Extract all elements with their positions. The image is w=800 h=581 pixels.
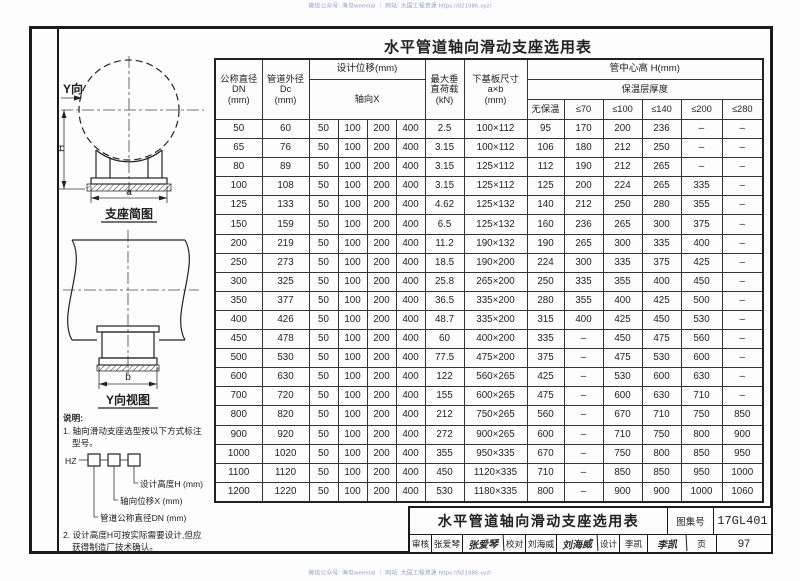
table-cell: 710 (603, 425, 642, 444)
table-cell: 50 (309, 482, 338, 502)
table-cell: 236 (642, 120, 681, 139)
table-cell: – (681, 158, 722, 177)
table-cell: 375 (527, 349, 564, 368)
table-cell: 400 (215, 310, 262, 329)
table-cell: 300 (603, 234, 642, 253)
table-cell: 670 (527, 444, 564, 463)
table-cell: 100 (338, 196, 367, 215)
title-block: 水平管道轴向滑动支座选用表 图集号 17GL401 审核 张爱琴 张爱琴 校对 … (408, 506, 773, 554)
table-cell: 475 (527, 387, 564, 406)
note-1-line-1: 1. 轴向滑动支座选型按以下方式标注 (63, 425, 202, 436)
table-cell: 400 (396, 425, 425, 444)
table-cell: 475 (642, 330, 681, 349)
table-cell: 355 (681, 196, 722, 215)
table-cell: 100 (338, 368, 367, 387)
table-cell: 150 (215, 215, 262, 234)
sketch1-caption: 支座简图 (104, 206, 153, 221)
table-cell: 950×335 (464, 444, 527, 463)
table-cell: – (564, 482, 603, 502)
table-cell: 106 (527, 139, 564, 158)
table-row: 100108501002004003.15125×112125200224265… (215, 177, 763, 196)
table-cell: 560 (681, 330, 722, 349)
table-cell: 900 (642, 482, 681, 502)
table-cell: 425 (642, 291, 681, 310)
table-cell: 280 (527, 291, 564, 310)
table-cell: 850 (681, 444, 722, 463)
table-cell: 400 (396, 158, 425, 177)
table-cell: 1060 (722, 482, 763, 502)
table-cell: 155 (425, 387, 464, 406)
y-direction-label: Y向 (63, 81, 83, 96)
table-row: 2002195010020040011.2190×132190265300335… (215, 234, 763, 253)
table-cell: 212 (603, 139, 642, 158)
table-cell: 50 (309, 291, 338, 310)
table-cell: 800 (215, 406, 262, 425)
table-row: 11001120501002004004501120×335710–850850… (215, 463, 763, 482)
table-cell: 100 (338, 291, 367, 310)
table-cell: 180 (564, 139, 603, 158)
table-cell: 560×265 (464, 368, 527, 387)
table-cell: 450 (642, 310, 681, 329)
table-cell: 125×112 (464, 177, 527, 196)
table-cell: 50 (309, 177, 338, 196)
table-cell: 125×132 (464, 215, 527, 234)
table-cell: 400 (396, 215, 425, 234)
table-cell: 200 (367, 291, 396, 310)
table-cell: 190×132 (464, 234, 527, 253)
table-cell: 1100 (215, 463, 262, 482)
table-cell: 3.15 (425, 139, 464, 158)
reviewer-label: 审核 (410, 535, 432, 552)
table-cell: 355 (564, 291, 603, 310)
table-cell: 190 (527, 234, 564, 253)
table-cell: 920 (262, 425, 309, 444)
table-cell: 200 (367, 196, 396, 215)
table-cell: 530 (425, 482, 464, 502)
table-cell: 400 (396, 387, 425, 406)
table-cell: – (722, 234, 763, 253)
table-cell: 400 (396, 349, 425, 368)
table-cell: 265 (564, 234, 603, 253)
table-row: 1000102050100200400355950×335670–7508008… (215, 444, 763, 463)
table-cell: 125 (527, 177, 564, 196)
atlas-number-label: 图集号 (668, 508, 714, 534)
table-cell: 710 (642, 406, 681, 425)
table-cell: – (722, 177, 763, 196)
table-cell: 160 (527, 215, 564, 234)
table-cell: 950 (722, 444, 763, 463)
table-cell: 400 (396, 291, 425, 310)
table-cell: 250 (603, 196, 642, 215)
table-cell: 200 (367, 425, 396, 444)
table-cell: 50 (309, 463, 338, 482)
page-number: 97 (717, 535, 771, 552)
table-cell: – (564, 330, 603, 349)
table-cell: 250 (642, 139, 681, 158)
table-cell: 1120 (262, 463, 309, 482)
page-label: 页 (687, 535, 717, 552)
table-cell: 100 (215, 177, 262, 196)
table-cell: 400 (564, 310, 603, 329)
table-cell: 1000 (722, 463, 763, 482)
table-cell: – (722, 253, 763, 272)
table-cell: 200 (367, 368, 396, 387)
table-cell: 400 (396, 139, 425, 158)
table-row: 80082050100200400212750×265560–670710750… (215, 406, 763, 425)
table-cell: 400 (603, 291, 642, 310)
table-cell: 212 (603, 158, 642, 177)
table-area: 水平管道轴向滑动支座选用表 公称直径 DN (mm) 管道外径 Dc (214, 39, 762, 503)
table-cell: 400 (396, 234, 425, 253)
table-row: 125133501002004004.62125×132140212250280… (215, 196, 763, 215)
header-center-height-group: 管中心高 H(mm) (527, 59, 763, 80)
table-cell: 272 (425, 425, 464, 444)
table-cell: 200 (367, 463, 396, 482)
table-cell: 200 (367, 253, 396, 272)
table-cell: 400 (396, 330, 425, 349)
table-cell: 200 (367, 120, 396, 139)
table-cell: 200 (367, 349, 396, 368)
table-cell: 335 (564, 272, 603, 291)
table-cell: 720 (262, 387, 309, 406)
table-cell: 850 (603, 463, 642, 482)
table-cell: 95 (527, 120, 564, 139)
table-cell: 100 (338, 406, 367, 425)
table-cell: 200 (367, 406, 396, 425)
table-row: 70072050100200400155600×265475–600630710… (215, 387, 763, 406)
table-cell: 50 (309, 310, 338, 329)
notes-section: 说明: 1. 轴向滑动支座选型按以下方式标注 型号。 HZ 设计高度H (mm)… (58, 404, 212, 552)
selection-table: 公称直径 DN (mm) 管道外径 Dc (mm) 设计位移(mm) 最大垂 直… (214, 58, 764, 503)
table-cell: 315 (527, 310, 564, 329)
table-cell: 50 (309, 139, 338, 158)
table-row: 3003255010020040025.8265×200250335355400… (215, 272, 763, 291)
table-cell: 100 (338, 253, 367, 272)
table-cell: – (722, 368, 763, 387)
table-cell: 400 (642, 272, 681, 291)
table-cell: 400 (396, 444, 425, 463)
table-cell: 820 (262, 406, 309, 425)
watermark-bottom: 微信公众号: 海见weental ｜ 网站: 大国工程资源 https://52… (72, 569, 728, 577)
table-cell: 425 (527, 368, 564, 387)
table-cell: 950 (681, 463, 722, 482)
header-insulation-thickness: 保温层厚度 (527, 80, 763, 100)
table-cell: 212 (425, 406, 464, 425)
table-cell: – (722, 310, 763, 329)
table-cell: 450 (681, 272, 722, 291)
table-cell: 170 (564, 120, 603, 139)
table-cell: 200 (367, 158, 396, 177)
table-row: 3503775010020040036.5335×200280355400425… (215, 291, 763, 310)
note-1-line-2: 型号。 (72, 438, 98, 448)
table-cell: 335 (603, 253, 642, 272)
table-cell: 65 (215, 139, 262, 158)
table-cell: 2.5 (425, 120, 464, 139)
table-cell: 300 (564, 253, 603, 272)
table-cell: 50 (309, 349, 338, 368)
table-cell: 1000 (681, 482, 722, 502)
table-cell: 200 (367, 330, 396, 349)
table-cell: 1020 (262, 444, 309, 463)
table-cell: 112 (527, 158, 564, 177)
table-cell: – (722, 330, 763, 349)
table-cell: 335×200 (464, 291, 527, 310)
table-cell: 25.8 (425, 272, 464, 291)
table-cell: 280 (642, 196, 681, 215)
header-le200: ≤200 (681, 100, 722, 120)
table-cell: 630 (262, 368, 309, 387)
table-cell: 400 (396, 310, 425, 329)
table-cell: 200 (367, 139, 396, 158)
table-cell: 50 (309, 368, 338, 387)
table-cell: 1120×335 (464, 463, 527, 482)
table-cell: 100 (338, 272, 367, 291)
table-cell: – (722, 120, 763, 139)
table-cell: 335×200 (464, 310, 527, 329)
table-cell: 140 (527, 196, 564, 215)
table-cell: 200 (367, 234, 396, 253)
table-cell: 50 (215, 120, 262, 139)
table-cell: 100 (338, 444, 367, 463)
table-cell: 710 (527, 463, 564, 482)
table-cell: 77.5 (425, 349, 464, 368)
header-le70: ≤70 (564, 100, 603, 120)
table-cell: 3.15 (425, 177, 464, 196)
table-cell: 265 (642, 158, 681, 177)
table-cell: – (722, 387, 763, 406)
table-cell: 300 (215, 272, 262, 291)
table-cell: 355 (603, 272, 642, 291)
table-cell: 50 (309, 196, 338, 215)
table-cell: 50 (309, 253, 338, 272)
table-cell: 224 (603, 177, 642, 196)
table-cell: 200 (367, 444, 396, 463)
table-cell: 76 (262, 139, 309, 158)
table-row: 90092050100200400272900×265600–710750800… (215, 425, 763, 444)
reviewer-signature: 张爱琴 (463, 534, 505, 553)
table-cell: 50 (309, 234, 338, 253)
note-2-line-2: 获得制造厂技术确认。 (72, 541, 158, 552)
watermark-top: 微信公众号: 海见weental ｜ 网站: 大国工程资源 https://52… (72, 2, 728, 10)
table-cell: 18.5 (425, 253, 464, 272)
header-dn: 公称直径 DN (mm) (215, 59, 262, 120)
document-page: 微信公众号: 海见weental ｜ 网站: 大国工程资源 https://52… (0, 0, 800, 581)
table-cell: 50 (309, 330, 338, 349)
table-cell: – (722, 349, 763, 368)
designer-label: 设计 (598, 535, 620, 552)
table-cell: 50 (309, 406, 338, 425)
table-cell: 400 (681, 234, 722, 253)
table-cell: 425 (603, 310, 642, 329)
table-cell: 273 (262, 253, 309, 272)
table-cell: – (681, 139, 722, 158)
proofreader-label: 校对 (504, 535, 526, 552)
table-title: 水平管道轴向滑动支座选用表 (214, 39, 762, 57)
header-axial-x: 轴向X (309, 80, 425, 120)
table-cell: 50 (309, 272, 338, 291)
table-cell: 100 (338, 177, 367, 196)
table-cell: 400 (396, 120, 425, 139)
dim-a-label: a (126, 187, 132, 198)
table-cell: – (564, 463, 603, 482)
table-cell: 200 (367, 482, 396, 502)
table-cell: 6.5 (425, 215, 464, 234)
table-cell: 250 (215, 253, 262, 272)
y-view-diagram: b Y向视图 (57, 226, 213, 410)
table-cell: 335 (681, 177, 722, 196)
table-cell: 700 (215, 387, 262, 406)
table-row: 150159501002004006.5125×1321602362653003… (215, 215, 763, 234)
table-cell: 236 (564, 215, 603, 234)
table-cell: 1220 (262, 482, 309, 502)
table-cell: 800 (642, 444, 681, 463)
dim-h-label: H (56, 145, 67, 152)
table-cell: 265×200 (464, 272, 527, 291)
notes-heading: 说明: (63, 412, 83, 423)
table-row: 60063050100200400122560×265425–530600630… (215, 368, 763, 387)
leader-nominal-diameter: 管道公称直径DN (mm) (100, 512, 187, 523)
table-cell: 190 (564, 158, 603, 177)
table-cell: 600 (681, 349, 722, 368)
table-cell: 265 (642, 177, 681, 196)
header-le280: ≤280 (722, 100, 763, 120)
title-block-title: 水平管道轴向滑动支座选用表 (410, 508, 668, 534)
header-le140: ≤140 (642, 100, 681, 120)
designer-name: 李凯 (620, 535, 648, 552)
table-cell: – (722, 291, 763, 310)
table-cell: 3.15 (425, 158, 464, 177)
reviewer-name: 张爱琴 (432, 535, 463, 552)
table-cell: 50 (309, 215, 338, 234)
table-cell: 377 (262, 291, 309, 310)
table-cell: – (722, 272, 763, 291)
table-cell: 1180×335 (464, 482, 527, 502)
table-cell: 475 (603, 349, 642, 368)
model-prefix: HZ (65, 456, 76, 466)
table-cell: 200 (603, 120, 642, 139)
table-cell: 750 (603, 444, 642, 463)
table-cell: 425 (681, 253, 722, 272)
table-cell: 108 (262, 177, 309, 196)
table-row: 8089501002004003.15125×112112190212265–– (215, 158, 763, 177)
table-cell: 530 (681, 310, 722, 329)
table-cell: 375 (681, 215, 722, 234)
designer-signature: 李凯 (648, 534, 688, 553)
proofreader-name: 刘海威 (526, 535, 557, 552)
table-cell: 4.62 (425, 196, 464, 215)
table-cell: 60 (262, 120, 309, 139)
leader-axial-displacement: 轴向位移X (mm) (120, 495, 183, 506)
table-cell: 850 (642, 463, 681, 482)
table-cell: 60 (425, 330, 464, 349)
table-row: 12001220501002004005301180×335800–900900… (215, 482, 763, 502)
table-cell: 325 (262, 272, 309, 291)
table-row: 4004265010020040048.7335×200315400425450… (215, 310, 763, 329)
table-header: 公称直径 DN (mm) 管道外径 Dc (mm) 设计位移(mm) 最大垂 直… (215, 59, 763, 120)
table-cell: 219 (262, 234, 309, 253)
table-cell: – (681, 120, 722, 139)
table-cell: 48.7 (425, 310, 464, 329)
table-cell: 450 (215, 330, 262, 349)
table-cell: 50 (309, 444, 338, 463)
table-cell: – (722, 215, 763, 234)
table-cell: – (722, 158, 763, 177)
table-cell: 600×265 (464, 387, 527, 406)
header-displacement-group: 设计位移(mm) (309, 59, 425, 80)
table-cell: 125×132 (464, 196, 527, 215)
table-cell: 200 (367, 310, 396, 329)
table-cell: 200 (564, 177, 603, 196)
table-cell: 530 (262, 349, 309, 368)
table-cell: 850 (722, 406, 763, 425)
table-cell: 400 (396, 482, 425, 502)
table-cell: 600 (215, 368, 262, 387)
table-cell: 750×265 (464, 406, 527, 425)
table-cell: 100 (338, 139, 367, 158)
table-cell: 100 (338, 234, 367, 253)
support-table-body: 5060501002004002.5100×11295170200236––65… (215, 120, 763, 502)
table-cell: 375 (642, 253, 681, 272)
table-cell: 400 (396, 253, 425, 272)
table-cell: 100 (338, 310, 367, 329)
header-load: 最大垂 直荷载 (kN) (425, 59, 464, 120)
table-cell: 400×200 (464, 330, 527, 349)
table-row: 4504785010020040060400×200335–450475560– (215, 330, 763, 349)
table-cell: 1000 (215, 444, 262, 463)
table-cell: 335 (527, 330, 564, 349)
table-cell: 530 (642, 349, 681, 368)
table-cell: 400 (396, 463, 425, 482)
table-cell: 530 (603, 368, 642, 387)
table-cell: 670 (603, 406, 642, 425)
table-cell: 200 (367, 272, 396, 291)
table-cell: 900 (603, 482, 642, 502)
table-cell: 500 (681, 291, 722, 310)
dim-b-label: b (125, 372, 131, 383)
table-cell: 100×112 (464, 139, 527, 158)
atlas-number-value: 17GL401 (714, 508, 771, 534)
table-cell: 710 (681, 387, 722, 406)
table-cell: 36.5 (425, 291, 464, 310)
table-cell: 400 (396, 196, 425, 215)
y-direction-arrow-icon (61, 95, 82, 100)
table-cell: 750 (642, 425, 681, 444)
table-cell: 89 (262, 158, 309, 177)
table-cell: 133 (262, 196, 309, 215)
table-cell: 475×200 (464, 349, 527, 368)
table-cell: 265 (603, 215, 642, 234)
table-cell: 450 (603, 330, 642, 349)
table-row: 6576501002004003.15100×112106180212250–– (215, 139, 763, 158)
table-cell: 900×265 (464, 425, 527, 444)
table-cell: 478 (262, 330, 309, 349)
table-cell: 400 (396, 406, 425, 425)
table-cell: 200 (367, 177, 396, 196)
table-cell: 630 (681, 368, 722, 387)
table-cell: 80 (215, 158, 262, 177)
table-cell: 100 (338, 330, 367, 349)
table-row: 5005305010020040077.5475×200375–47553060… (215, 349, 763, 368)
table-cell: 100 (338, 387, 367, 406)
table-cell: 50 (309, 120, 338, 139)
note-2-line-1: 2. 设计高度H可按实际需要设计,但应 (63, 529, 202, 540)
table-cell: 125×112 (464, 158, 527, 177)
table-cell: 212 (564, 196, 603, 215)
model-designation-diagram: HZ 设计高度H (mm) 轴向位移X (mm) 管道公称直径DN (mm) (65, 454, 203, 523)
table-cell: 100 (338, 120, 367, 139)
table-cell: 300 (642, 215, 681, 234)
table-cell: 200 (367, 387, 396, 406)
